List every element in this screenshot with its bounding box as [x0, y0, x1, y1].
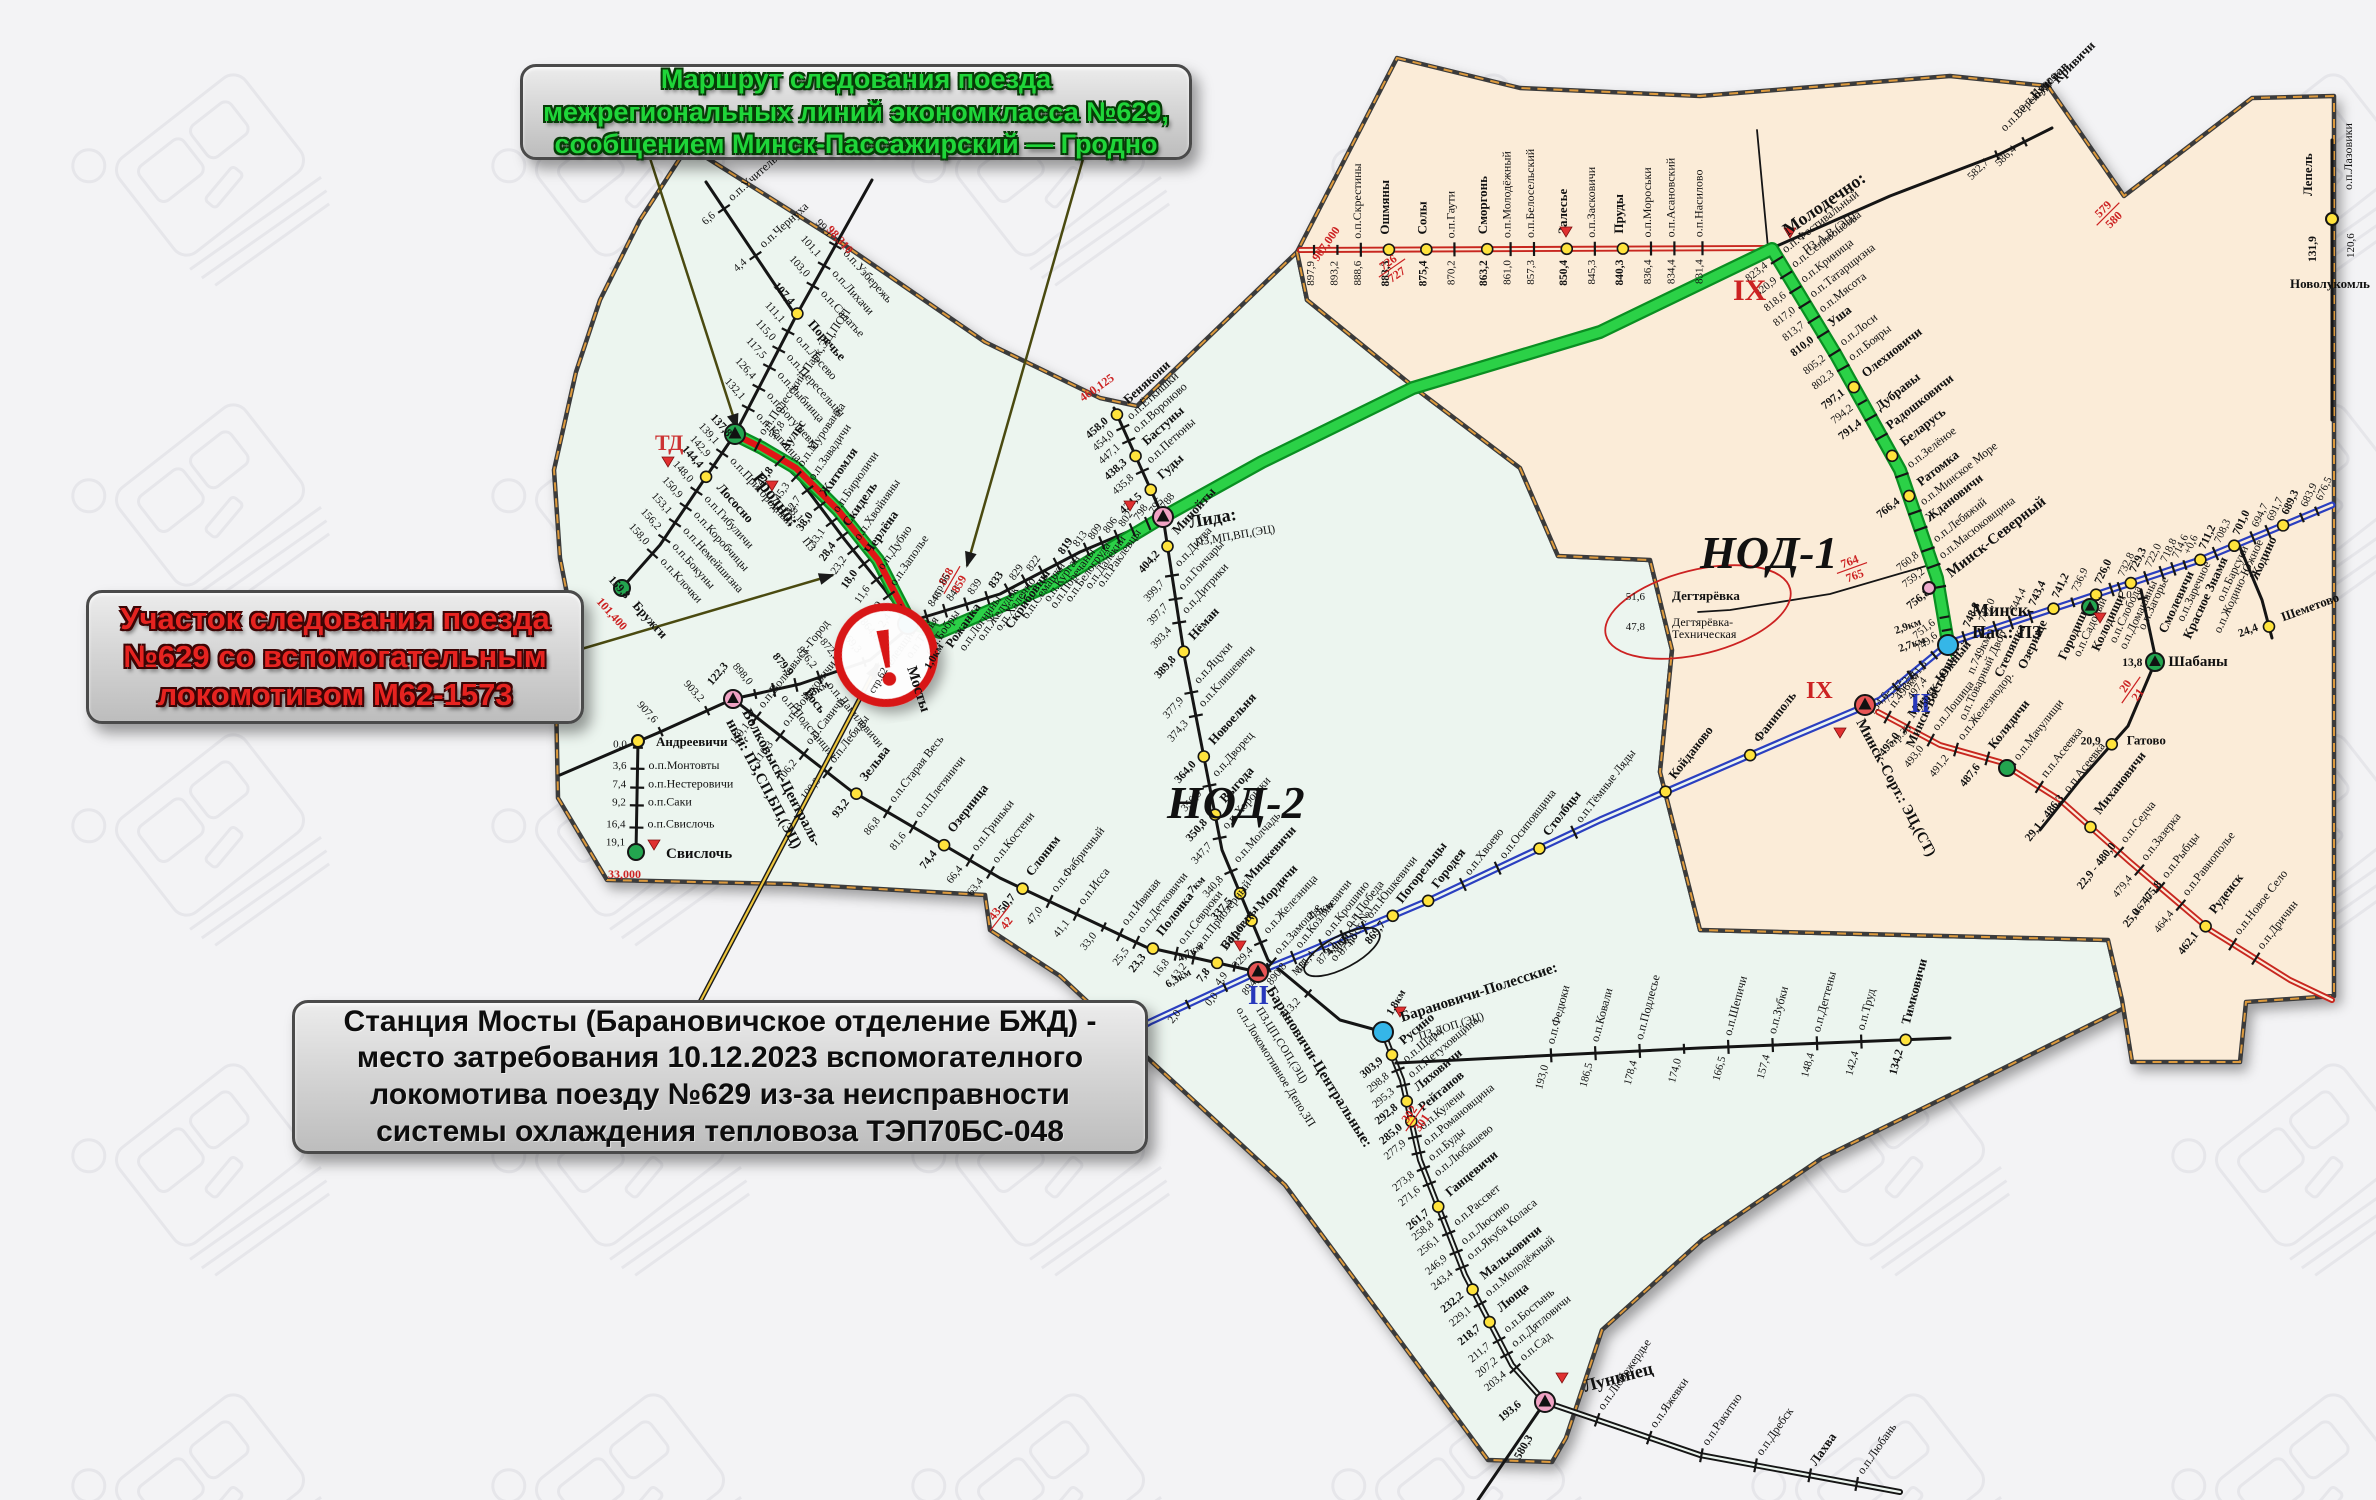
km-label: 7,4	[612, 779, 626, 791]
km-label: 20,9	[2081, 735, 2101, 747]
junction-dot	[1999, 760, 2015, 776]
map-label: НОД-1	[1699, 527, 1838, 578]
station-label: о.п.Молодёжный	[1500, 151, 1514, 238]
station-dot	[1178, 646, 1189, 657]
station-label: Шабаны	[2168, 654, 2228, 670]
km-label: 9,2	[612, 796, 626, 808]
km-label: 19,1	[606, 836, 625, 848]
map-label: Лепель	[2300, 153, 2315, 196]
route-callout-line2: межрегиональных линий экономкласса №629,	[543, 96, 1169, 129]
station-tick	[1595, 1046, 1596, 1060]
junction-dot	[1923, 582, 1935, 594]
station-dot	[701, 471, 712, 482]
junction-dot	[628, 844, 644, 860]
station-dot	[1421, 244, 1432, 255]
station-dot	[1387, 1049, 1398, 1060]
station-label: о.п.Скрестины	[1350, 163, 1364, 238]
station-label: о.п.Засковичи	[1584, 166, 1598, 237]
incident-line3: локомотива поезду №629 из-за неисправнос…	[370, 1077, 1070, 1114]
map-label: 120,6	[2345, 233, 2357, 258]
km-label: 897,9	[1305, 260, 1317, 285]
station-dot	[1848, 382, 1859, 393]
railway-map: о.п.Каплица132,1о.п.Богушевка126,4о.п.Ры…	[0, 0, 2376, 1500]
station-dot	[2048, 603, 2059, 614]
junction-dot	[2326, 213, 2338, 225]
km-label: 0,0	[613, 739, 627, 751]
map-label: Минск-	[1972, 600, 2034, 620]
km-label: 16,4	[606, 819, 626, 831]
km-label: 13,8	[2122, 657, 2142, 669]
map-label: Дегтярёвка	[1672, 588, 1740, 603]
station-label: Ошмяны	[1377, 180, 1392, 235]
helper-loco-line3: локомотивом М62-1573	[157, 676, 512, 714]
incident-callout: Станция Мосты (Барановичское отделение Б…	[292, 1000, 1148, 1154]
station-label: Сморгонь	[1475, 176, 1490, 234]
map-label: IX	[1806, 678, 1833, 704]
route-callout-line3: сообщением Минск-Пассажирский — Гродно	[554, 128, 1157, 161]
station-dot	[1482, 244, 1493, 255]
station-dot	[1887, 450, 1898, 461]
station-tick	[1728, 1040, 1729, 1054]
map-stage: о.п.Каплица132,1о.п.Богушевка126,4о.п.Ры…	[0, 0, 2376, 1500]
station-label: о.п.Свислочь	[647, 817, 715, 831]
station-dot	[1111, 409, 1122, 420]
station-label: о.п.Асановский	[1663, 157, 1677, 237]
station-label: о.п.Мороськи	[1640, 167, 1654, 238]
junction-dot	[1373, 1022, 1393, 1042]
station-tick	[1861, 1035, 1862, 1049]
map-label: IX	[1733, 274, 1767, 307]
km-label: 831,4	[1693, 259, 1705, 284]
map-label: Новолукомль	[2290, 276, 2370, 291]
map-label: НОД-2	[1166, 777, 1305, 828]
station-tick	[1639, 1044, 1640, 1058]
station-dot	[2278, 520, 2289, 531]
station-dot	[1561, 243, 1572, 254]
km-label: 840,3	[1614, 259, 1626, 285]
km-label: 870,2	[1445, 260, 1457, 285]
map-label: Пас.: ПЗ	[1972, 622, 2042, 642]
helper-loco-line2: №629 со вспомогательным	[123, 638, 546, 676]
station-dot	[1130, 450, 1141, 461]
map-label: Техническая	[1672, 627, 1737, 641]
km-label: 834,4	[1665, 259, 1677, 284]
station-tick	[1817, 1036, 1818, 1050]
station-dot	[1617, 243, 1628, 254]
station-label: о.п.Саки	[648, 794, 693, 808]
km-label: 0,0	[2118, 589, 2132, 601]
station-dot	[1484, 1317, 1495, 1328]
station-dot	[1198, 751, 1209, 762]
km-label: 861,0	[1502, 260, 1514, 285]
map-label: Свислочь	[666, 846, 732, 862]
station-tick	[1551, 1048, 1552, 1062]
km-label: 857,3	[1525, 260, 1537, 285]
station-label: Пруды	[1611, 194, 1626, 234]
incident-line4: системы охлаждения тепловоза ТЭП70БС-048	[376, 1114, 1064, 1151]
map-label: Андреевичи	[656, 734, 728, 749]
station-label: Гатово	[2127, 732, 2166, 747]
station-dot	[2263, 621, 2274, 632]
station-dot	[1467, 1284, 1478, 1295]
route-callout-line1: Маршрут следования поезда	[661, 63, 1051, 96]
station-dot	[1534, 843, 1545, 854]
km-label: 863,2	[1478, 260, 1490, 286]
map-label: о.п.Лазовики	[2341, 123, 2355, 190]
km-label: 893,2	[1328, 261, 1340, 286]
km-label: 888,6	[1352, 260, 1364, 285]
station-dot	[1145, 484, 1156, 495]
railway-line-andreevichi-south	[636, 741, 638, 852]
station-dot	[1147, 943, 1158, 954]
map-label: 51,6	[1626, 591, 1646, 603]
station-label: о.п.Гаути	[1443, 190, 1457, 238]
route-callout: Маршрут следования поезда межрегиональны…	[520, 64, 1192, 160]
map-label: ТД	[655, 430, 683, 455]
station-dot	[1387, 910, 1398, 921]
station-dot	[1904, 490, 1915, 501]
station-dot	[1017, 883, 1028, 894]
station-dot	[2106, 739, 2117, 750]
station-dot	[2200, 921, 2211, 932]
station-label: о.п.Нестеровичи	[648, 777, 734, 791]
station-dot	[1162, 541, 1173, 552]
km-label: 875,4	[1417, 260, 1429, 286]
junction-dot	[632, 735, 644, 747]
station-dot	[1900, 1034, 1911, 1045]
station-dot	[2085, 822, 2096, 833]
map-label: 131,9	[2307, 236, 2319, 262]
junction-dot	[1938, 635, 1958, 655]
station-dot	[1212, 957, 1223, 968]
station-label: Солы	[1414, 201, 1429, 234]
map-label: 33,000	[608, 867, 641, 881]
incident-line1: Станция Мосты (Барановичское отделение Б…	[344, 1004, 1097, 1041]
station-dot	[1660, 786, 1671, 797]
km-label: 3,6	[613, 760, 627, 772]
helper-loco-callout: Участок следования поезда №629 со вспомо…	[86, 590, 584, 724]
station-dot	[792, 308, 803, 319]
station-tick	[1772, 1038, 1773, 1052]
km-label: 845,3	[1586, 259, 1598, 284]
station-dot	[939, 840, 950, 851]
station-dot	[1745, 750, 1756, 761]
station-dot	[1423, 895, 1434, 906]
incident-line2: место затребования 10.12.2023 вспомогате…	[357, 1040, 1083, 1077]
km-label: 850,4	[1558, 260, 1570, 286]
station-label: о.п.Монтовты	[649, 758, 720, 772]
station-dot	[1433, 1201, 1444, 1212]
map-label: 47,8	[1626, 621, 1646, 633]
station-dot	[851, 788, 862, 799]
station-label: о.п.Насилово	[1691, 170, 1705, 238]
helper-loco-line1: Участок следования поезда	[120, 600, 550, 638]
km-label: 836,4	[1642, 259, 1654, 284]
station-label: о.п.Белосельский	[1523, 148, 1537, 238]
